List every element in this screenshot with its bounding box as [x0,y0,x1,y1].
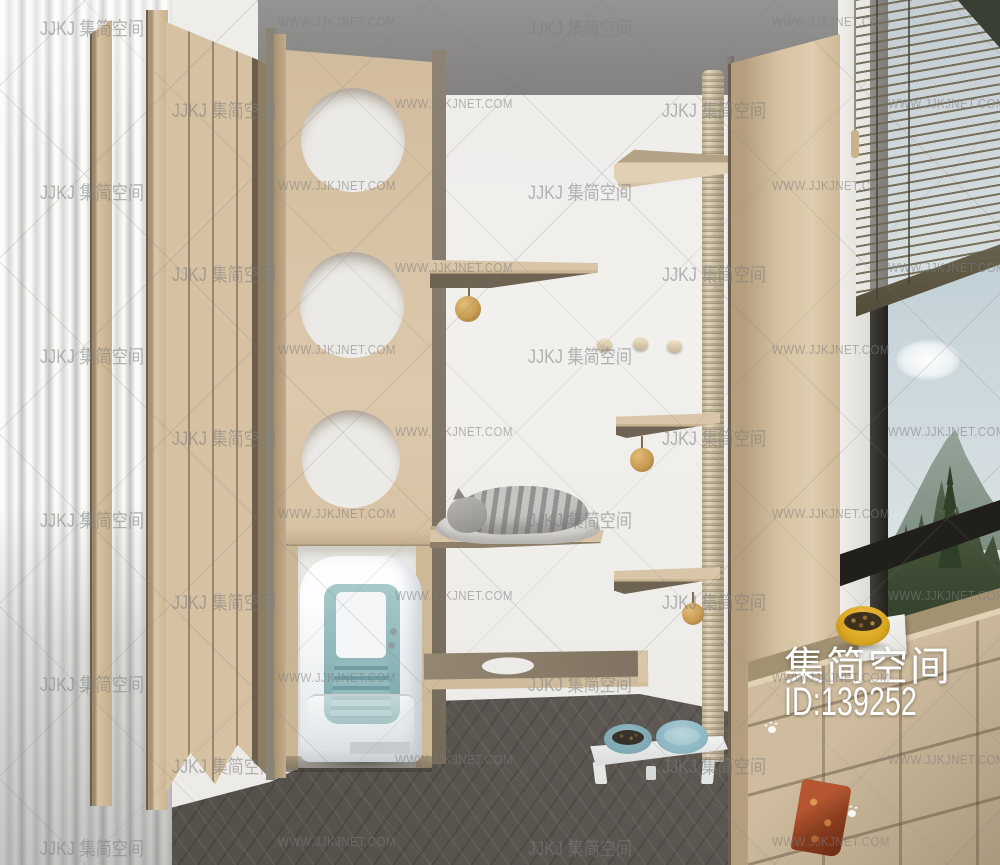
cat-head [447,497,487,533]
hanging-ball-toy [630,448,654,472]
hanging-ball-toy [455,296,481,322]
water-bowl-inner [664,727,700,745]
alcove-lintel [286,528,432,546]
wall-peg [633,337,648,350]
asset-id: ID:139252 [784,680,917,725]
litter-box-drawer [308,694,414,748]
litter-box-button [388,642,395,649]
render-canvas: 集简空间 ID:139252 JJKJ 集简空间WWW.JJKJNET.COMJ… [0,0,1000,865]
wood-batten [146,10,168,810]
cat-tower-hole [300,252,404,358]
hanging-ball-toy [682,603,704,625]
wood-batten [90,20,112,806]
cat-tower-hole [301,88,405,192]
walkway-edge [424,676,648,689]
blinds-wand-cord [854,0,856,132]
walkway-end-cap [638,650,648,682]
wood-plank-panel [166,12,268,800]
food-in-bowl [612,730,644,745]
litter-box [300,556,422,766]
kibble-in-bowl [844,612,882,631]
cloud [896,340,960,380]
cat-tower-hole [302,410,400,508]
blinds-cord [876,0,878,300]
alcove-side [286,546,298,770]
litter-box-vent [350,742,410,754]
feeder-leg [701,760,715,784]
wall-peg [597,338,612,351]
litter-box-button [390,628,397,635]
blinds-wand [851,130,859,158]
walkway-shelf [424,648,649,691]
wall-peg [667,340,682,352]
cat-tower-side-left [274,34,286,778]
blinds-cord [908,0,910,284]
brand-overlay: 集简空间 ID:139252 [784,634,1000,726]
litter-box-flap [336,592,386,658]
feeder-leg [646,766,656,780]
